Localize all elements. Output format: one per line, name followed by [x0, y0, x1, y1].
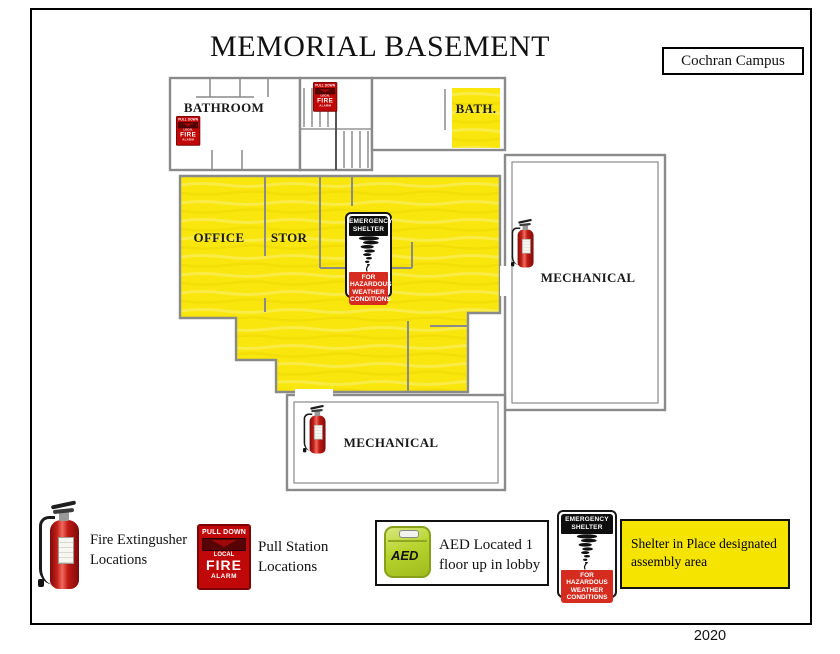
evacuation-map-page: MEMORIAL BASEMENT Cochran Campus: [0, 0, 840, 654]
legend-shelter-area-box: Shelter in Place designated assembly are…: [620, 519, 790, 589]
fire-extinguisher-icon: [303, 404, 328, 456]
mechanical-bottom-label: MECHANICAL: [331, 435, 451, 451]
pull-handle: [202, 538, 246, 551]
year-label: 2020: [682, 628, 738, 644]
tornado-icon: [349, 236, 388, 272]
storage-label: STOR: [260, 230, 318, 246]
legend-pull-station-label: Pull Station Locations: [258, 537, 350, 578]
legend-pull-station-icon: PULL DOWN LOCAL FIRE ALARM: [197, 524, 251, 590]
legend-shelter-note: Shelter in Place designated assembly are…: [622, 521, 788, 570]
pull-handle: [315, 88, 335, 94]
legend-fire-extinguisher-label: Fire Extingusher Locations: [90, 531, 196, 570]
bath-label: BATH.: [450, 101, 502, 117]
aed-handle: [399, 530, 419, 538]
bathroom-label: BATHROOM: [172, 100, 276, 116]
mechanical-right-label: MECHANICAL: [528, 270, 648, 286]
office-label: OFFICE: [178, 230, 260, 246]
aed-icon: AED: [384, 526, 431, 578]
emergency-shelter-sign: EMERGENCY SHELTER FOR HAZARDOUS WEATHER …: [345, 212, 392, 298]
legend-emergency-shelter-sign: EMERGENCY SHELTER FOR HAZARDOUS WEATHER …: [557, 510, 617, 598]
fire-extinguisher-icon: [511, 218, 536, 270]
tornado-icon: [561, 534, 613, 570]
pull-handle: [178, 122, 198, 128]
legend-aed-box: AED AED Located 1 floor up in lobby: [375, 520, 549, 586]
shelter-area-fill: [180, 176, 500, 392]
bath-shelter-fill: [452, 88, 500, 148]
legend-fire-extinguisher-icon: [38, 499, 82, 591]
pull-station-icon: PULL DOWN LOCAL FIRE ALARM: [176, 116, 201, 146]
pull-station-icon: PULL DOWN LOCAL FIRE ALARM: [313, 82, 338, 112]
legend-aed-note: AED Located 1 floor up in lobby: [439, 535, 543, 576]
